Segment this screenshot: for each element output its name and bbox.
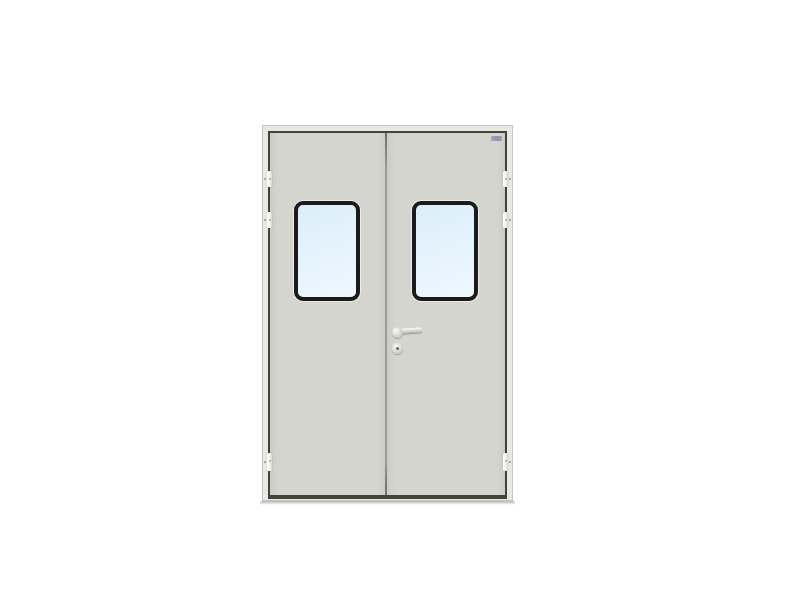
hinge-left-upper: [267, 212, 272, 228]
keyhole-escutcheon: [392, 343, 403, 354]
hinge-right-top: [503, 171, 508, 187]
hinge-pin-dot: [509, 219, 511, 221]
left-door-leaf: [270, 133, 385, 495]
hinge-pin-dot: [264, 219, 266, 221]
hinge-pin-dot: [509, 461, 511, 463]
door-assembly: [262, 125, 513, 501]
handle-rose: [392, 327, 403, 338]
vision-window-right: [412, 201, 478, 301]
door-shadow: [260, 501, 515, 505]
door-reveal-gap: [268, 131, 507, 499]
vision-window-left: [294, 201, 360, 301]
hinge-right-upper: [503, 212, 508, 228]
right-door-leaf: [387, 133, 505, 495]
hinge-right-bottom: [503, 453, 508, 471]
hinge-pin-dot: [264, 461, 266, 463]
product-image-canvas: [0, 0, 800, 600]
hinge-left-top: [267, 171, 272, 187]
hinge-pin-dot: [509, 178, 511, 180]
hinge-pin-dot: [264, 178, 266, 180]
brand-mark: [491, 136, 502, 141]
hinge-left-bottom: [267, 453, 272, 471]
keyhole-icon: [396, 347, 399, 350]
